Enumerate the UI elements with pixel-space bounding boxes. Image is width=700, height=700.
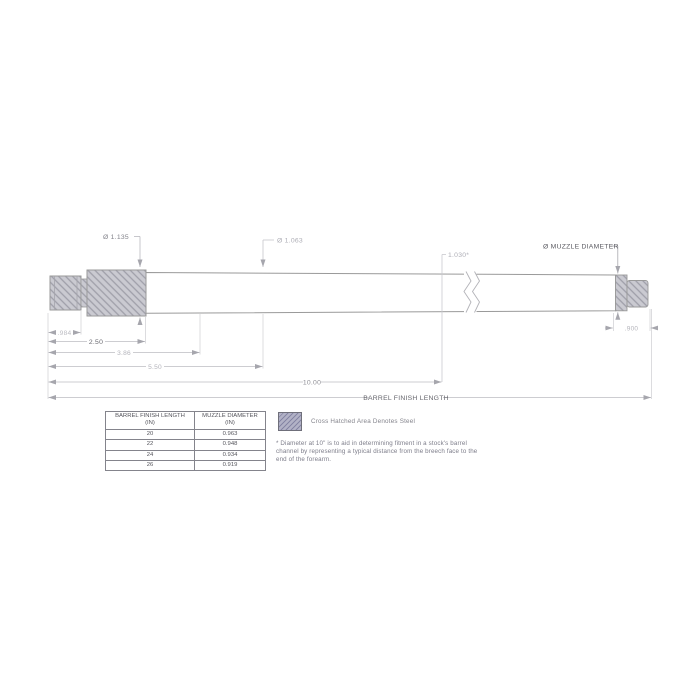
steel-legend: Cross Hatched Area Denotes Steel [278,412,415,431]
table-row: 200.963 [106,429,266,439]
muzzle-threads [616,275,649,311]
header-unit: (IN) [109,420,191,427]
table-cell: 0.919 [195,460,266,470]
thread-protector [627,281,648,308]
table-cell: 0.934 [195,450,266,460]
header-title: BARREL FINISH LENGTH [109,413,191,420]
chamber-diameter-label: Ø 1.135 [103,234,129,241]
table-cell: 26 [106,460,195,470]
table-cell: 0.963 [195,429,266,439]
breech-diameter-label: Ø 1.063 [277,238,303,245]
cross-hatch-swatch-icon [278,412,302,431]
dim-chamber-length: 2.50 [89,339,103,346]
dimension-lines [49,328,659,398]
muzzle-diameter-label: Ø MUZZLE DIAMETER [543,244,619,251]
dim-muzzle-thread: .900 [625,326,639,333]
table-cell: 22 [106,440,195,450]
table-header-row: BARREL FINISH LENGTH (IN) MUZZLE DIAMETE… [106,412,266,430]
thread-relief [81,279,87,307]
dim-ten-inch: 10.00 [303,380,321,387]
table-header-muzzle-diameter: MUZZLE DIAMETER (IN) [195,412,266,430]
extension-lines [48,309,652,399]
table-row: 220.948 [106,440,266,450]
dim-taper-point-2: 5.50 [148,364,162,371]
dim-taper-point-1: 3.86 [117,350,131,357]
table-row: 260.919 [106,460,266,470]
dim-tenon-length: .984 [58,330,72,337]
table-cell: 24 [106,450,195,460]
legend-label: Cross Hatched Area Denotes Steel [311,418,415,425]
ten-inch-diameter-label: 1.030* [448,252,469,259]
header-unit: (IN) [198,420,262,427]
barrel-drawing: Ø 1.135 Ø 1.063 1.030* Ø MUZZLE DIAMETER [0,0,700,700]
thread-tenon [50,276,87,310]
breech-diameter-callout [263,240,274,267]
header-title: MUZZLE DIAMETER [198,413,262,420]
barrel-spec-sheet: Ø 1.135 Ø 1.063 1.030* Ø MUZZLE DIAMETER [0,0,700,700]
chamber-section [87,270,146,316]
dim-finish-length: BARREL FINISH LENGTH [363,395,449,402]
table-header-finish-length: BARREL FINISH LENGTH (IN) [106,412,195,430]
table-cell: 0.948 [195,440,266,450]
diameter-footnote: * Diameter at 10" is to aid in determini… [276,440,479,465]
barrel-body [146,273,616,314]
table-cell: 20 [106,429,195,439]
muzzle-diameter-table: BARREL FINISH LENGTH (IN) MUZZLE DIAMETE… [105,411,266,471]
table-row: 240.934 [106,450,266,460]
